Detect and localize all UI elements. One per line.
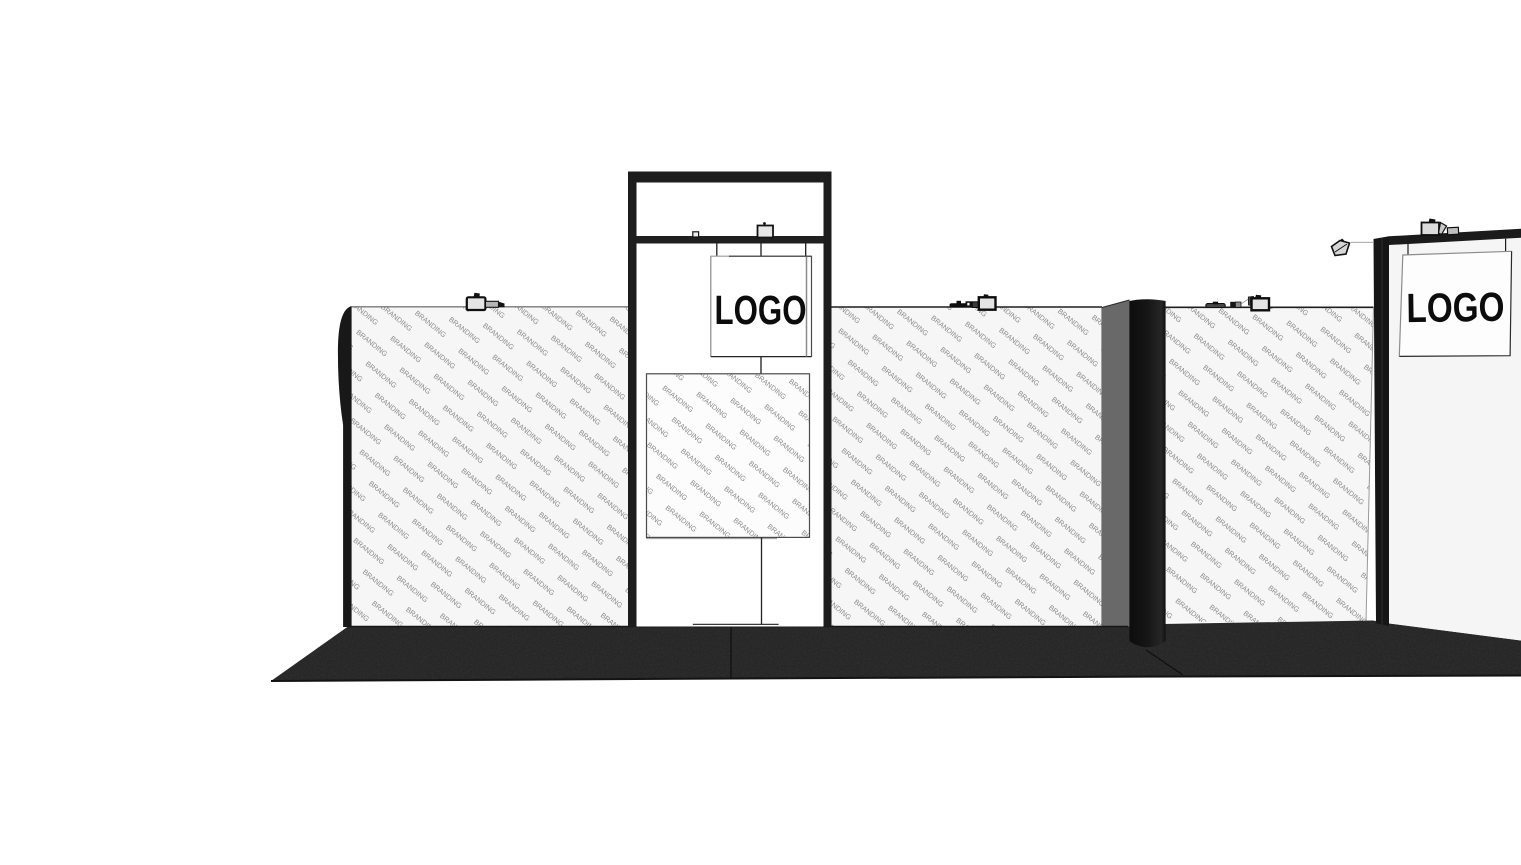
svg-text:LOGO: LOGO [1406,284,1505,331]
svg-text:LOGO: LOGO [715,287,807,333]
